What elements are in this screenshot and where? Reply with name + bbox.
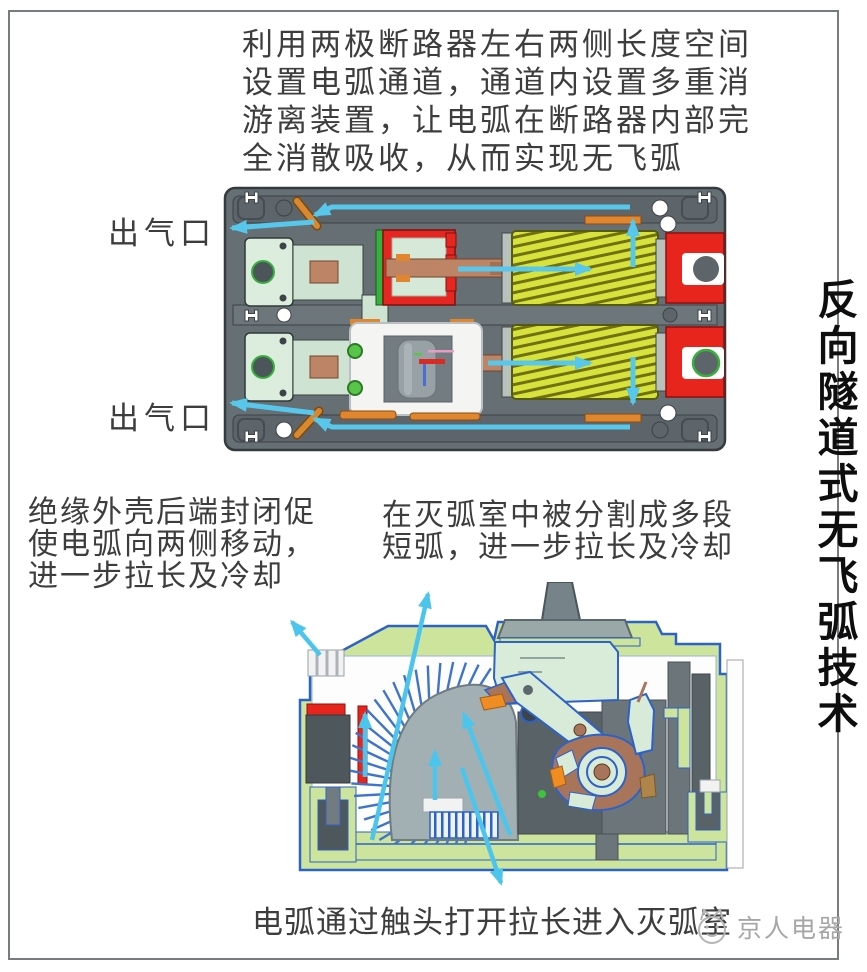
note-insulation-shell: 绝缘外壳后端封闭促 使电弧向两侧移动， 进一步拉长及冷却: [28, 497, 373, 593]
intro-text: 利用两极断路器左右两侧长度空间 设置电弧通道，通道内设置多重消 游离装置，让电弧…: [242, 26, 782, 178]
page: 利用两极断路器左右两侧长度空间 设置电弧通道，通道内设置多重消 游离装置，让电弧…: [0, 0, 867, 972]
caption-arc-path: 电弧通过触头打开拉长进入灭弧室: [252, 897, 732, 942]
trip-unit-box: [348, 323, 482, 415]
green-strip: [376, 230, 383, 305]
handle: [498, 582, 640, 646]
note-arc-chamber: 在灭弧室中被分割成多段 短弧，进一步拉长及冷却: [382, 500, 762, 564]
brand-logo-icon: [692, 906, 732, 948]
brand-watermark: 京人电器: [692, 906, 845, 948]
brand-name: 京人电器: [737, 909, 845, 945]
breaker-side-view-diagram: [280, 582, 760, 900]
terminal-red-top: [666, 233, 724, 303]
breaker-top-view-diagram: [200, 183, 730, 455]
terminal-red-bottom: [666, 327, 724, 397]
vertical-title: 反向隧道式无飞弧技术: [804, 278, 864, 748]
